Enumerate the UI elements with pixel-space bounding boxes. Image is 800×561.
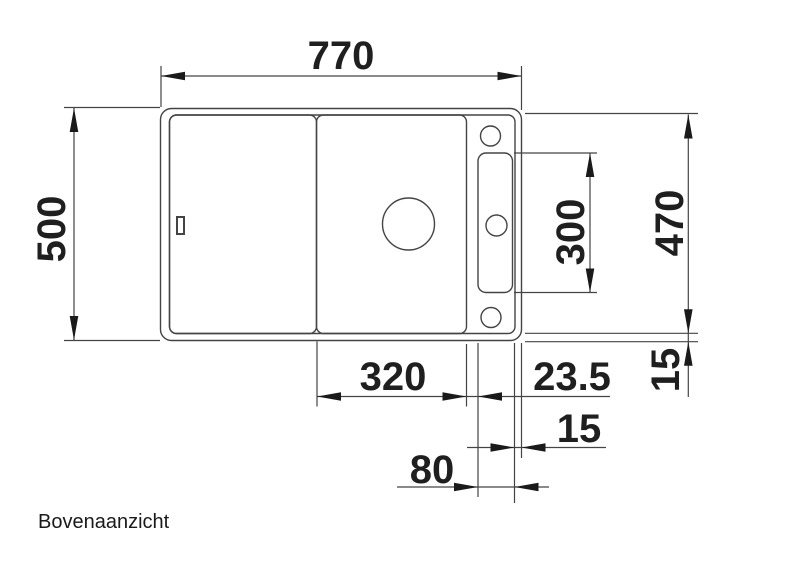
extension-lines [64, 66, 698, 503]
drawing-svg [0, 0, 800, 561]
main-bowl [317, 115, 467, 334]
sink-body [161, 109, 522, 341]
dim-label-bowl-to-ledge: 23.5 [533, 357, 611, 397]
sink-inner-rim [170, 115, 516, 334]
arrow-500-top [70, 108, 79, 132]
arrow-500-bottom [70, 316, 79, 340]
dim-label-ledge-recess-length: 300 [551, 199, 591, 266]
arrow-770-left [161, 72, 185, 81]
arrow-80-right [515, 483, 539, 492]
tap-hole-bottom [481, 308, 501, 328]
arrow-300-top [586, 153, 595, 177]
arrow-300-bottom [586, 269, 595, 293]
drain-hole [383, 198, 435, 250]
dim-label-rim-bottom: 15 [646, 348, 686, 393]
arrow-470-top [684, 115, 693, 139]
dim-label-inner-depth: 470 [650, 190, 690, 257]
arrow-15h-right [522, 443, 546, 452]
board-grip-slot [177, 217, 184, 234]
technical-drawing-sink-top-view: 770 500 470 300 15 320 23.5 15 80 Bovena… [0, 0, 800, 561]
dim-label-overall-depth: 500 [32, 196, 72, 263]
arrow-770-right [498, 72, 522, 81]
dim-label-ledge-to-edge: 15 [557, 409, 602, 449]
arrow-320-right [443, 392, 467, 401]
cutting-board-area [170, 115, 317, 334]
dim-label-overall-width: 770 [308, 36, 375, 76]
dim-label-ledge-width: 80 [410, 450, 455, 490]
arrow-15h-left [491, 443, 515, 452]
arrow-235-right [478, 392, 502, 401]
tap-hole-middle [486, 215, 507, 236]
tap-hole-top [481, 126, 501, 146]
arrow-470-bottom [684, 309, 693, 333]
view-caption: Bovenaanzicht [38, 511, 169, 534]
arrow-320-left [317, 392, 341, 401]
arrow-80-left [454, 483, 478, 492]
dim-label-bowl-width: 320 [360, 357, 427, 397]
sink-outer-rim [161, 109, 522, 341]
